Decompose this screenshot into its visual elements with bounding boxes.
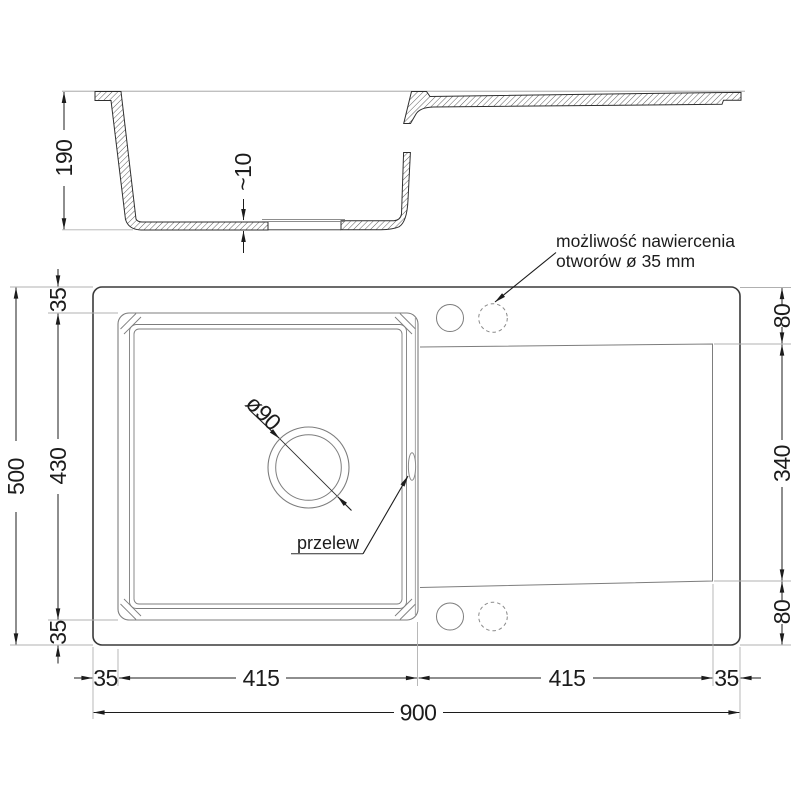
dim-text-overall-depth: 500	[3, 458, 29, 495]
section-drainer-board	[404, 92, 741, 124]
dim-floor-thickness: ~10	[230, 153, 256, 253]
drawing-canvas: 190 ~10	[0, 0, 800, 800]
section-view: 190 ~10	[51, 91, 745, 253]
overflow-label: przelew	[297, 533, 360, 553]
dim-text-rim-left: 35	[93, 665, 118, 691]
dim-text-10: ~10	[230, 153, 256, 191]
dim-text-rim-bottom: 35	[45, 620, 71, 645]
dim-text-overall-width: 900	[400, 700, 437, 726]
dim-section-height: 190	[51, 92, 77, 229]
dim-text-drainer-length: 340	[769, 445, 795, 482]
dim-text-bowl-width: 415	[243, 665, 280, 691]
sink-technical-drawing: 190 ~10	[0, 0, 800, 800]
dim-text-drainer-width: 415	[549, 665, 586, 691]
overflow-slot	[408, 453, 415, 481]
dim-text-bowl-depth: 430	[45, 448, 71, 485]
plan-view: ø90 przelew możliwość nawiercenia otworó…	[3, 231, 795, 726]
section-right-bottom	[341, 153, 410, 230]
dim-text-190: 190	[51, 140, 77, 177]
dim-text-rim-top: 35	[45, 288, 71, 313]
dim-text-drainer-to-rim: 80	[769, 600, 795, 625]
dim-text-rim-right: 35	[714, 665, 739, 691]
holes-note-line1: możliwość nawiercenia	[556, 231, 735, 251]
dim-text-rim-to-drainer: 80	[769, 304, 795, 329]
holes-note-line2: otworów ø 35 mm	[556, 251, 695, 271]
sink-outline	[93, 287, 740, 645]
